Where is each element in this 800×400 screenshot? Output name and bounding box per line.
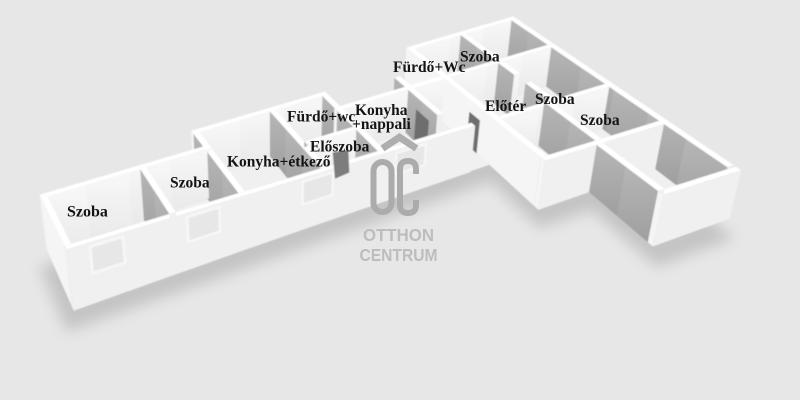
svg-text:Szoba: Szoba [580, 112, 620, 129]
svg-text:Előtér: Előtér [485, 98, 526, 115]
svg-text:Szoba: Szoba [67, 204, 108, 221]
svg-text:Fürdő+wc: Fürdő+wc [287, 109, 355, 126]
svg-text:OTTHON: OTTHON [363, 225, 434, 245]
svg-text:+nappali: +nappali [352, 116, 411, 133]
svg-text:Konyha+étkező: Konyha+étkező [227, 154, 331, 171]
svg-text:Szoba: Szoba [535, 91, 575, 108]
svg-text:Fürdő+Wc: Fürdő+Wc [393, 59, 466, 76]
svg-text:Szoba: Szoba [170, 175, 210, 192]
svg-text:Szoba: Szoba [460, 49, 500, 66]
svg-text:CENTRUM: CENTRUM [360, 245, 438, 265]
svg-text:Előszoba: Előszoba [310, 139, 370, 156]
